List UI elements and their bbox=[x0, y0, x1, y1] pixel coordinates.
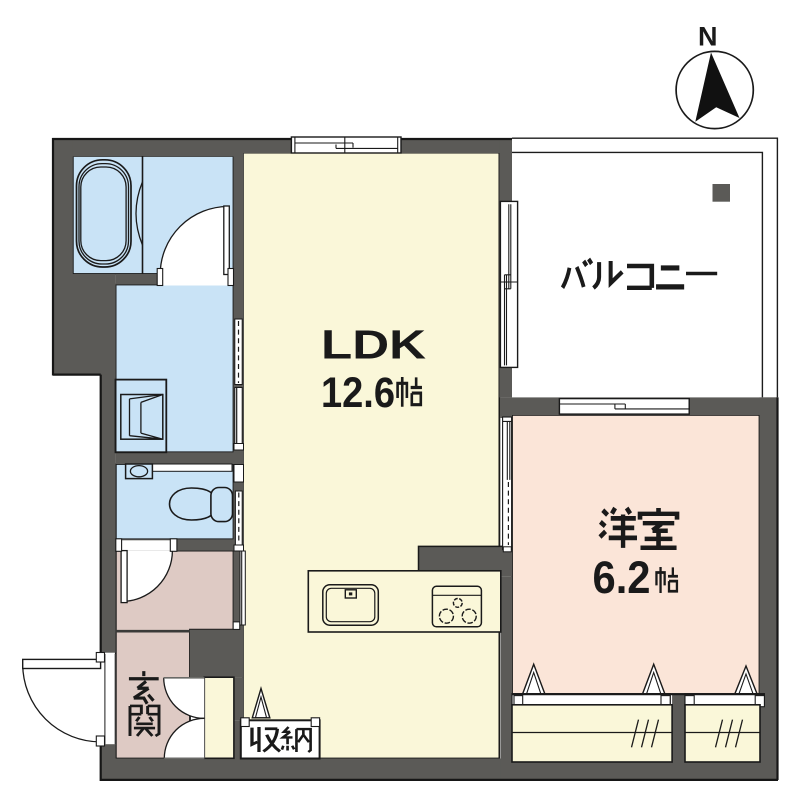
svg-text:6.2: 6.2 bbox=[593, 552, 651, 603]
svg-text:N: N bbox=[698, 21, 718, 51]
svg-text:12.6: 12.6 bbox=[321, 369, 395, 417]
svg-text:LDK: LDK bbox=[321, 321, 426, 367]
